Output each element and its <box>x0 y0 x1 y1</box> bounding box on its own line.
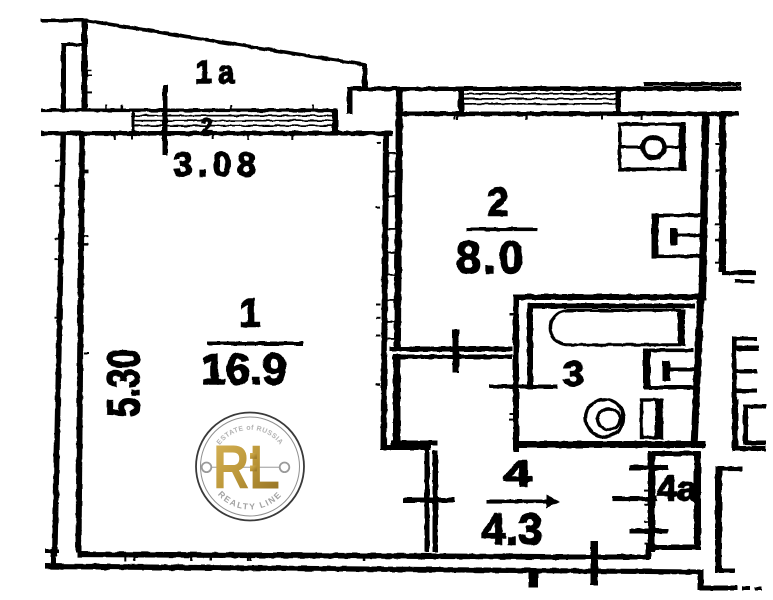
svg-text:1: 1 <box>239 292 261 336</box>
svg-text:1а: 1а <box>196 54 241 90</box>
svg-text:5.30: 5.30 <box>98 349 149 417</box>
svg-text:2: 2 <box>488 181 509 225</box>
svg-text:16.9: 16.9 <box>201 345 287 394</box>
svg-text:4.3: 4.3 <box>481 505 542 554</box>
svg-text:RL: RL <box>213 434 280 503</box>
svg-text:4: 4 <box>504 453 533 494</box>
svg-text:4а: 4а <box>657 470 698 509</box>
svg-text:3.08: 3.08 <box>173 146 261 184</box>
svg-text:8.0: 8.0 <box>456 232 526 283</box>
svg-text:2: 2 <box>201 115 213 138</box>
svg-text:3: 3 <box>563 355 584 394</box>
